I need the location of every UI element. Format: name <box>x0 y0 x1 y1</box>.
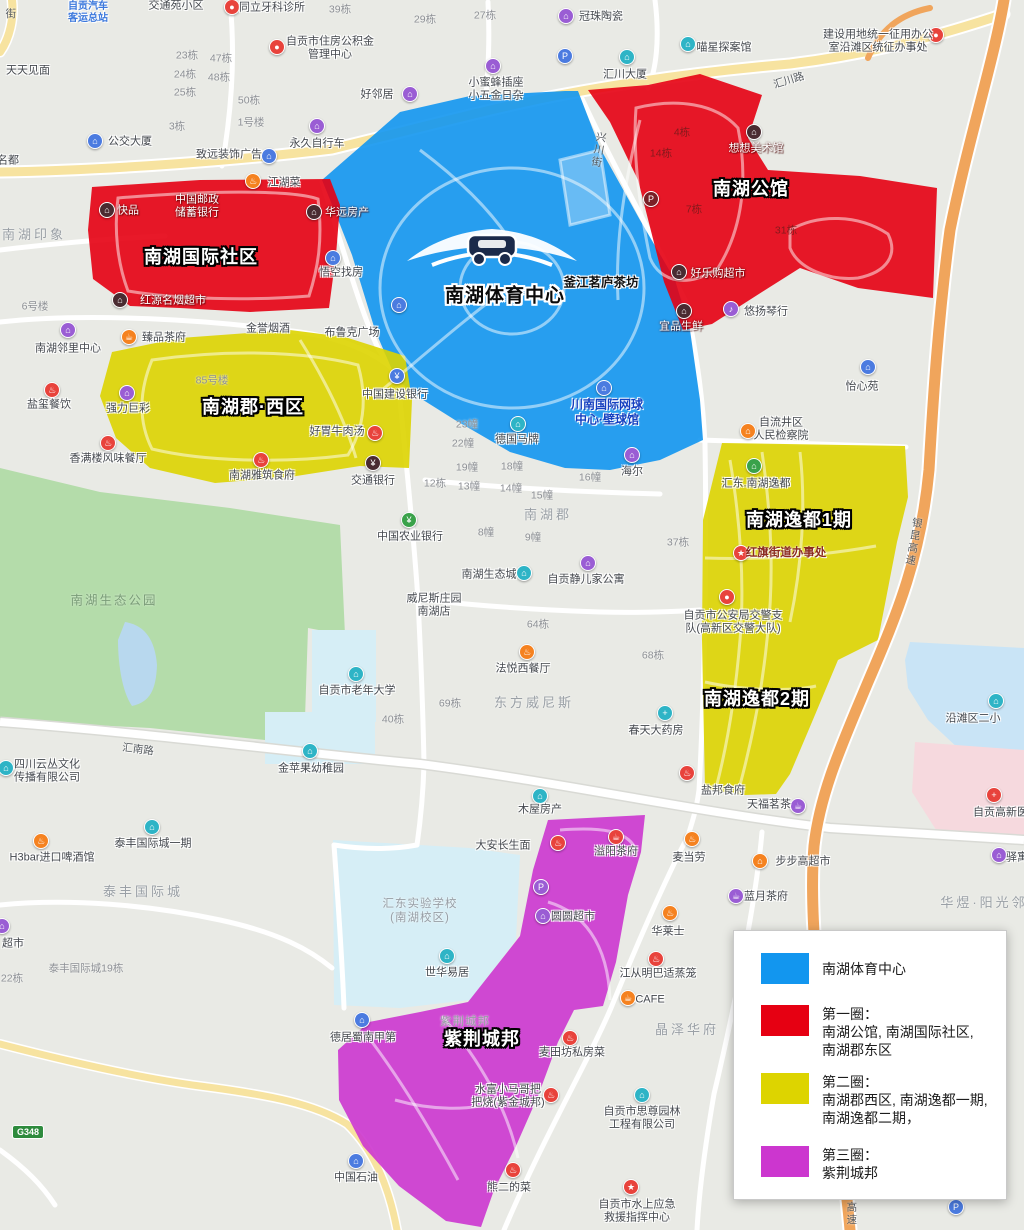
poi-icon[interactable]: ⌂ <box>306 204 322 220</box>
poi-icon[interactable]: ♨ <box>100 435 116 451</box>
poi-label[interactable]: 臻品茶府 <box>142 331 186 344</box>
poi-icon[interactable]: ♨ <box>519 644 535 660</box>
poi-label[interactable]: 悠扬琴行 <box>744 305 788 318</box>
poi-label[interactable]: 大安长生面 <box>476 839 531 852</box>
legend-label: 第一圈： <box>822 1005 974 1023</box>
poi-icon[interactable]: ⌂ <box>119 385 135 401</box>
poi-icon[interactable]: ⌂ <box>348 1153 364 1169</box>
poi-label[interactable]: 自贡市思尊园林 工程有限公司 <box>604 1106 681 1133</box>
poi-label[interactable]: 水富小马哥把 把烧(紫金城邦) <box>471 1084 544 1111</box>
poi-label[interactable]: 快品 <box>117 204 139 217</box>
poi-icon[interactable]: ♪ <box>723 301 739 317</box>
poi-label: 南湖郡 <box>524 507 572 523</box>
poi-label[interactable]: 金苹果幼稚园 <box>278 762 344 775</box>
poi-label: 高速 <box>845 1202 858 1227</box>
poi-icon[interactable]: ● <box>269 39 285 55</box>
poi-label: 16幢 <box>579 472 601 485</box>
legend-label: 第二圈： <box>822 1073 988 1091</box>
poi-icon[interactable]: ⌂ <box>302 743 318 759</box>
poi-label[interactable]: 圆圆超市 <box>551 910 595 923</box>
poi-label[interactable]: 海尔 <box>621 465 643 478</box>
poi-icon[interactable]: P <box>557 48 573 64</box>
poi-icon[interactable]: ⌂ <box>746 458 762 474</box>
poi-label[interactable]: 世华易居 <box>425 966 469 979</box>
poi-icon[interactable]: ☕ <box>121 329 137 345</box>
region-label: 南湖体育中心 <box>445 284 565 307</box>
poi-label[interactable]: 德居蜀南甲第 <box>330 1031 396 1044</box>
legend-swatch-circle-3 <box>761 1146 809 1177</box>
poi-icon[interactable]: ♨ <box>505 1162 521 1178</box>
poi-label[interactable]: 悟空找房 <box>319 266 363 279</box>
route-shield-g348: G348 <box>12 1125 44 1139</box>
poi-icon[interactable]: ⌂ <box>60 322 76 338</box>
poi-label[interactable]: 交通银行 <box>351 474 395 487</box>
poi-label: 23幢 <box>456 419 478 432</box>
poi-label: 22幢 <box>452 438 474 451</box>
poi-label[interactable]: 同立牙科诊所 <box>239 1 305 14</box>
poi-label[interactable]: 4栋 <box>674 127 690 140</box>
poi-label[interactable]: 宜品生鲜 <box>659 320 703 333</box>
region-label: 南湖逸都2期 <box>704 689 810 711</box>
poi-icon[interactable]: ¥ <box>365 455 381 471</box>
poi-icon[interactable]: ● <box>719 589 735 605</box>
poi-label: 37栋 <box>667 537 689 550</box>
poi-icon[interactable]: ⌂ <box>676 303 692 319</box>
poi-label[interactable]: 南湖生态城 <box>462 568 517 581</box>
poi-icon[interactable]: ⌂ <box>510 416 526 432</box>
legend-label: 南湖郡东区 <box>822 1041 974 1059</box>
poi-icon[interactable]: ★ <box>623 1179 639 1195</box>
legend-label: 南湖郡西区, 南湖逸都一期, <box>822 1091 988 1109</box>
poi-label[interactable]: 法悦西餐厅 <box>496 662 551 675</box>
poi-label[interactable]: 建设用地统一征用办公 室沿滩区统征办事处 <box>823 29 933 56</box>
poi-label[interactable]: 强力巨彩 <box>106 402 150 415</box>
poi-label: 南湖印象 <box>2 227 66 243</box>
poi-icon[interactable]: ⌂ <box>402 86 418 102</box>
poi-icon[interactable]: ♨ <box>550 835 566 851</box>
poi-label[interactable]: 永久自行车 <box>290 137 345 150</box>
poi-icon[interactable]: ♨ <box>679 765 695 781</box>
poi-label[interactable]: 自贡市老年大学 <box>319 684 396 697</box>
legend-label: 紫荆城邦 <box>822 1164 878 1182</box>
poi-icon[interactable]: ♨ <box>245 173 261 189</box>
poi-label[interactable]: 木屋房产 <box>518 803 562 816</box>
poi-icon[interactable]: ♨ <box>662 905 678 921</box>
poi-label: 23栋 <box>176 50 198 63</box>
poi-label: 12栋 <box>424 478 446 491</box>
poi-label[interactable]: 自贡市公安局交警支 队(高新区交警大队) <box>684 610 783 637</box>
poi-label[interactable]: 天天见面 <box>6 64 50 77</box>
poi-icon[interactable]: ⌂ <box>624 447 640 463</box>
poi-label[interactable]: 14栋 <box>650 148 672 161</box>
poi-label[interactable]: 麦田坊私房菜 <box>539 1046 605 1059</box>
region-label: 紫荆城邦 <box>444 1029 520 1051</box>
poi-label[interactable]: 怡心苑 <box>846 380 879 393</box>
poi-label[interactable]: 盐邦食府 <box>701 784 745 797</box>
poi-icon[interactable]: ⌂ <box>439 948 455 964</box>
poi-icon[interactable]: ⌂ <box>325 250 341 266</box>
poi-label[interactable]: 名都 <box>0 154 19 167</box>
poi-icon[interactable]: ⌂ <box>991 847 1007 863</box>
poi-label[interactable]: 香满楼风味餐厅 <box>70 452 147 465</box>
poi-label: 汇东实验学校 (南湖校区) <box>383 897 458 925</box>
poi-icon[interactable]: ♨ <box>367 425 383 441</box>
poi-label: 1号楼 <box>238 117 265 130</box>
poi-icon[interactable]: ¥ <box>401 512 417 528</box>
poi-label[interactable]: 中国邮政 储蓄银行 <box>175 194 219 221</box>
poi-label[interactable]: 釜江茗庐茶坊 <box>563 275 638 290</box>
poi-label: 85号楼 <box>196 375 229 388</box>
poi-label[interactable]: 华莱士 <box>652 925 685 938</box>
poi-label: 华煜·阳光邻里 <box>940 895 1024 911</box>
legend-label: 南湖逸都二期， <box>822 1109 988 1127</box>
poi-label[interactable]: 威尼斯庄园 南湖店 <box>407 593 462 620</box>
poi-icon[interactable]: ♨ <box>44 382 60 398</box>
poi-label[interactable]: 交通苑小区 <box>149 0 204 13</box>
poi-label[interactable]: 天福茗茶 <box>747 798 791 811</box>
legend-label: 南湖体育中心 <box>822 960 906 978</box>
poi-label[interactable]: 中国石油 <box>334 1171 378 1184</box>
poi-label: 15幢 <box>531 490 553 503</box>
poi-label: 29栋 <box>414 14 436 27</box>
poi-label[interactable]: 好邻居 <box>361 88 394 101</box>
poi-label[interactable]: 溢阳茶府 <box>594 845 638 858</box>
legend-label: 第三圈： <box>822 1146 878 1164</box>
poi-label[interactable]: 公交大厦 <box>108 135 152 148</box>
poi-label: 紫荆城邦 <box>440 1015 490 1029</box>
poi-icon[interactable]: ⌂ <box>516 565 532 581</box>
poi-label: 40栋 <box>382 714 404 727</box>
poi-icon[interactable]: ⌂ <box>391 297 407 313</box>
region-label: 南湖郡·西区 <box>202 397 304 419</box>
poi-icon[interactable]: ⌂ <box>580 555 596 571</box>
poi-label[interactable]: 川南国际网球 中心·壁球馆 <box>571 397 643 426</box>
poi-label[interactable]: 金誉烟酒 <box>246 322 290 335</box>
poi-icon[interactable]: ☕ <box>790 798 806 814</box>
poi-icon[interactable]: ⌂ <box>485 58 501 74</box>
legend-label: 南湖公馆, 南湖国际社区, <box>822 1023 974 1041</box>
poi-label[interactable]: 7栋 <box>686 204 702 217</box>
poi-label: 24栋 <box>174 69 196 82</box>
poi-label[interactable]: 沿滩区二小 <box>946 712 1001 725</box>
poi-label: 8幢 <box>478 527 494 540</box>
poi-icon[interactable]: ⌂ <box>348 666 364 682</box>
poi-label[interactable]: 四川云丛文化 传播有限公司 <box>14 759 80 786</box>
poi-label: 47栋 <box>210 53 232 66</box>
poi-label[interactable]: 汇川大厦 <box>603 68 647 81</box>
poi-label[interactable]: H3bar进口啤酒馆 <box>10 851 95 864</box>
poi-icon[interactable]: P <box>643 191 659 207</box>
poi-label[interactable]: CAFE <box>635 993 664 1006</box>
poi-icon[interactable]: ⌂ <box>680 36 696 52</box>
poi-icon[interactable]: P <box>948 1199 964 1215</box>
poi-label[interactable]: 自贡市水上应急 救援指挥中心 <box>599 1199 676 1226</box>
poi-label: 泰丰国际城19栋 <box>49 963 124 976</box>
poi-label[interactable]: 南湖邻里中心 <box>35 342 101 355</box>
poi-label[interactable]: 布鲁克广场 <box>325 326 380 339</box>
poi-icon[interactable]: ⌂ <box>634 1087 650 1103</box>
poi-icon[interactable]: + <box>657 705 673 721</box>
poi-icon[interactable]: ⌂ <box>144 819 160 835</box>
poi-label[interactable]: 超市 <box>2 937 24 950</box>
poi-label[interactable]: 麦当劳 <box>673 851 706 864</box>
poi-label[interactable]: 致远装饰广告 <box>196 148 262 161</box>
poi-label: 泰丰国际城 <box>103 884 183 900</box>
poi-label[interactable]: 自贡汽车 客运总站 <box>68 1 108 25</box>
poi-label: 22栋 <box>1 973 23 986</box>
legend-swatch-circle-1 <box>761 1005 809 1036</box>
poi-label[interactable]: 想想美术馆 <box>729 142 784 155</box>
region-label: 南湖逸都1期 <box>746 510 852 532</box>
poi-icon[interactable]: ☕ <box>608 829 624 845</box>
poi-label[interactable]: 红源名烟超市 <box>140 294 206 307</box>
poi-icon[interactable]: ⌂ <box>752 853 768 869</box>
poi-label: 68栋 <box>642 650 664 663</box>
poi-label: 东方威尼斯 <box>494 695 574 711</box>
poi-label[interactable]: 蓝月茶府 <box>744 890 788 903</box>
poi-label[interactable]: 自贡高新医院 <box>973 806 1024 819</box>
poi-label[interactable]: 冠珠陶瓷 <box>579 10 623 23</box>
poi-icon[interactable]: ⌂ <box>112 292 128 308</box>
poi-icon[interactable]: ⌂ <box>99 202 115 218</box>
legend-swatch-sports-center <box>761 953 809 984</box>
poi-label: 19幢 <box>456 462 478 475</box>
poi-label[interactable]: 熊二的菜 <box>487 1181 531 1194</box>
poi-icon[interactable]: ⌂ <box>746 124 762 140</box>
poi-label[interactable]: 江湖菜 <box>268 176 301 189</box>
poi-label: 50栋 <box>238 95 260 108</box>
poi-label: 69栋 <box>439 698 461 711</box>
poi-icon[interactable]: ♨ <box>684 831 700 847</box>
poi-label: 39栋 <box>329 4 351 17</box>
poi-label[interactable]: 驿寓 <box>1006 851 1024 864</box>
region-label: 南湖公馆 <box>713 179 789 201</box>
poi-label: 18幢 <box>501 461 523 474</box>
poi-icon[interactable]: ⌂ <box>558 8 574 24</box>
poi-icon[interactable]: ⌂ <box>261 148 277 164</box>
poi-icon[interactable]: ☕ <box>620 990 636 1006</box>
poi-label: 3栋 <box>169 121 185 134</box>
school-area-1 <box>312 630 376 722</box>
poi-icon[interactable]: ⌂ <box>535 908 551 924</box>
poi-label: 南湖生态公园 <box>70 593 157 608</box>
poi-icon[interactable]: ♨ <box>562 1030 578 1046</box>
poi-icon[interactable]: ⌂ <box>532 788 548 804</box>
poi-label: 64栋 <box>527 619 549 632</box>
poi-icon[interactable]: ⌂ <box>354 1012 370 1028</box>
poi-label[interactable]: 泰丰国际城一期 <box>115 837 192 850</box>
poi-icon[interactable]: ⌂ <box>596 380 612 396</box>
poi-label[interactable]: 中国农业银行 <box>377 530 443 543</box>
poi-label: 14幢 <box>500 483 522 496</box>
poi-icon[interactable]: ⌂ <box>87 133 103 149</box>
poi-icon[interactable]: ⌂ <box>309 118 325 134</box>
poi-label: 9幢 <box>525 532 541 545</box>
poi-icon[interactable]: ⌂ <box>671 264 687 280</box>
poi-label[interactable]: 红旗街道办事处 <box>746 546 827 560</box>
poi-label: 13幢 <box>458 481 480 494</box>
poi-icon[interactable]: ♨ <box>33 833 49 849</box>
poi-label[interactable]: 汇东.南湖逸都 <box>721 477 790 490</box>
poi-icon[interactable]: ♨ <box>543 1087 559 1103</box>
poi-label[interactable]: 春天大药房 <box>629 724 684 737</box>
poi-label[interactable]: 小蜜蜂插座 小五金日杂 <box>469 77 524 104</box>
poi-label: 27栋 <box>474 10 496 23</box>
poi-icon[interactable]: ♨ <box>648 951 664 967</box>
poi-icon[interactable]: ☕ <box>728 888 744 904</box>
region-label: 南湖国际社区 <box>144 247 258 269</box>
legend-panel: 南湖体育中心 第一圈： 南湖公馆, 南湖国际社区, 南湖郡东区 第二圈： 南湖郡… <box>733 930 1007 1200</box>
poi-icon[interactable]: ⌂ <box>988 693 1004 709</box>
poi-label[interactable]: 华远房产 <box>325 206 369 219</box>
poi-label: 6号楼 <box>22 301 49 314</box>
poi-icon[interactable]: ¥ <box>389 368 405 384</box>
poi-icon[interactable]: ⌂ <box>619 49 635 65</box>
poi-label: 25栋 <box>174 87 196 100</box>
poi-icon[interactable]: + <box>986 787 1002 803</box>
poi-label: 48栋 <box>208 72 230 85</box>
poi-label[interactable]: 德国马牌 <box>495 433 539 446</box>
poi-label[interactable]: 南湖雅筑食府 <box>229 469 295 482</box>
poi-label[interactable]: 盐玺餐饮 <box>27 398 71 411</box>
poi-label[interactable]: 好乐购超市 <box>691 267 746 280</box>
poi-label: 街 <box>4 8 17 21</box>
poi-label[interactable]: 31栋 <box>775 225 797 238</box>
legend-swatch-circle-2 <box>761 1073 809 1104</box>
map-screenshot: 街自贡汽车 客运总站交通苑小区●同立牙科诊所39栋29栋27栋⌂冠珠陶瓷⌂喵星探… <box>0 0 1024 1230</box>
poi-label[interactable]: 自流井区 人民检察院 <box>754 417 809 444</box>
poi-label[interactable]: 喵星探案馆 <box>697 41 752 54</box>
poi-label[interactable]: 好胃牛肉汤 <box>310 425 365 438</box>
poi-icon[interactable]: ♨ <box>253 452 269 468</box>
poi-label[interactable]: 自贡市住房公积金 管理中心 <box>286 36 374 63</box>
poi-label[interactable]: 中国建设银行 <box>362 388 428 401</box>
poi-label[interactable]: 自贡静儿家公寓 <box>548 573 625 586</box>
poi-label: 晶泽华府 <box>655 1022 719 1038</box>
poi-icon[interactable]: ⌂ <box>860 359 876 375</box>
poi-icon[interactable]: P <box>533 879 549 895</box>
poi-label[interactable]: 江从明巴适蒸笼 <box>620 967 697 980</box>
poi-label[interactable]: 步步高超市 <box>776 855 831 868</box>
